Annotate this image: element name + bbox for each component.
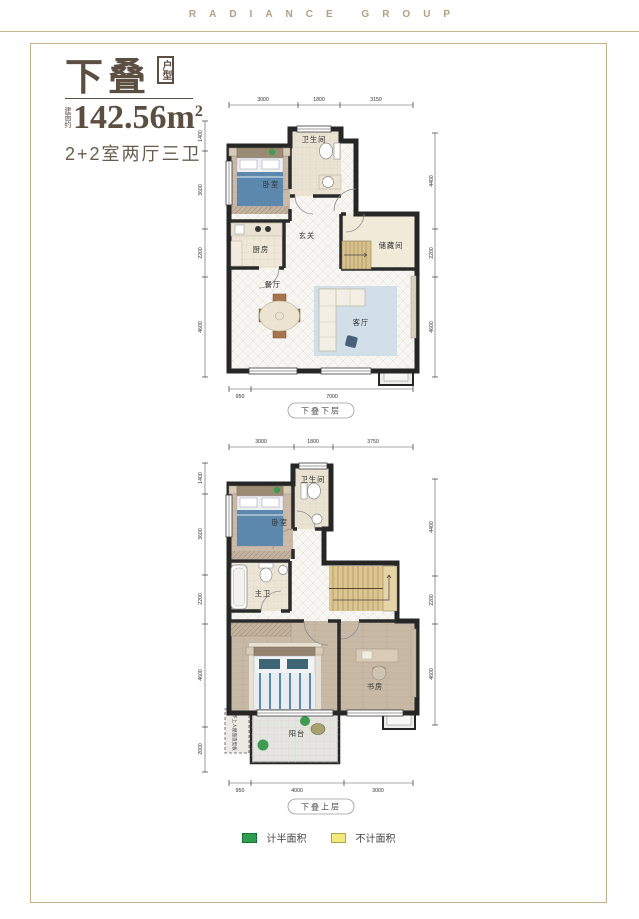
room-label-study: 书房: [367, 682, 383, 691]
tv-cabinet: [411, 276, 416, 338]
upper-plan-caption: 下叠上层: [288, 799, 354, 814]
plant-icon: [300, 716, 310, 726]
svg-text:1400: 1400: [198, 130, 204, 142]
legend-swatch-half-area: [242, 833, 257, 843]
svg-text:2000: 2000: [198, 743, 204, 755]
room-label-balcony: 阳台: [289, 729, 305, 738]
double-bed: [229, 486, 291, 546]
toilet-icon: [301, 483, 321, 499]
svg-text:4400: 4400: [429, 175, 435, 187]
svg-text:4000: 4000: [291, 788, 303, 794]
svg-text:下叠上层: 下叠上层: [301, 803, 341, 812]
plan-type-badge: 户型: [157, 56, 174, 84]
area-value: 142.56: [73, 101, 167, 135]
room-label-bedroom: 卧室: [263, 180, 279, 189]
svg-text:1800: 1800: [307, 439, 319, 445]
svg-text:4600: 4600: [429, 321, 435, 333]
room-label-bathroom: 卫生间: [301, 475, 326, 484]
area-prefix: 建面约: [64, 107, 71, 128]
svg-text:1800: 1800: [313, 97, 325, 103]
bathtub-icon: [231, 565, 247, 609]
svg-text:3600: 3600: [198, 528, 204, 540]
lower-floor-plan: 卧室 卫生间 玄关 厨房 储藏间 餐厅 客厅 3000 1800 3150 14…: [183, 91, 453, 426]
room-label-bathroom: 卫生间: [302, 135, 327, 144]
title-block: 下叠户型: [65, 56, 174, 102]
balcony: [251, 713, 339, 763]
stairs-icon: [342, 241, 371, 269]
plan-title: 下叠: [65, 57, 151, 99]
room-label-kitchen: 厨房: [253, 245, 269, 254]
lower-plan-caption: 下叠下层: [288, 403, 354, 418]
svg-text:4600: 4600: [198, 669, 204, 681]
roof-note-box: 不上人屋面造型板: [225, 709, 249, 753]
svg-text:1400: 1400: [198, 472, 204, 484]
sink-icon: [279, 566, 288, 575]
svg-text:3150: 3150: [370, 97, 382, 103]
layout-description: 2+2室两厅三卫: [65, 140, 202, 166]
svg-text:2200: 2200: [198, 593, 204, 605]
upper-floor-plan: 不上人屋面造型板: [183, 433, 453, 833]
room-label-dining: 餐厅: [265, 280, 281, 289]
svg-text:7000: 7000: [326, 394, 338, 400]
svg-text:4600: 4600: [429, 668, 435, 680]
legend-label-excluded: 不计面积: [356, 830, 396, 845]
svg-text:950: 950: [236, 394, 245, 400]
svg-text:3000: 3000: [372, 788, 384, 794]
roof-note-text: 不上人屋面造型板: [231, 714, 238, 751]
legend: 计半面积 不计面积: [31, 830, 606, 845]
bookshelf: [411, 629, 416, 697]
room-label-bedroom: 卧室: [272, 518, 288, 527]
svg-text:下叠下层: 下叠下层: [301, 407, 341, 416]
legend-label-half-area: 计半面积: [267, 830, 307, 845]
svg-text:2200: 2200: [429, 594, 435, 606]
toilet-icon: [320, 143, 341, 159]
svg-text:3000: 3000: [257, 97, 269, 103]
brand-header: RADIANCE GROUP: [0, 9, 639, 20]
plant-icon: [258, 740, 269, 751]
svg-text:2200: 2200: [198, 247, 204, 259]
room-label-foyer: 玄关: [299, 231, 315, 240]
svg-text:2200: 2200: [429, 247, 435, 259]
svg-text:950: 950: [236, 788, 245, 794]
area-row: 建面约 142.56 m 2: [64, 101, 203, 135]
legend-swatch-excluded: [331, 833, 346, 843]
double-bed: [246, 647, 323, 709]
double-bed: [229, 148, 290, 206]
room-label-storage: 储藏间: [379, 241, 404, 250]
toilet-icon: [259, 563, 273, 582]
svg-text:3000: 3000: [255, 439, 267, 445]
svg-text:4600: 4600: [198, 321, 204, 333]
plant-icon: [274, 487, 280, 493]
plant-icon: [269, 149, 275, 155]
top-divider: [0, 31, 639, 32]
wardrobe-hatch: [231, 623, 291, 636]
svg-text:3600: 3600: [198, 184, 204, 196]
sink-icon: [312, 514, 322, 524]
content-frame: 下叠户型 建面约 142.56 m 2 2+2室两厅三卫: [30, 43, 607, 903]
room-label-master-bath: 主卫: [255, 589, 271, 598]
svg-text:4400: 4400: [429, 521, 435, 533]
svg-text:3750: 3750: [367, 439, 379, 445]
room-label-living: 客厅: [353, 318, 369, 327]
